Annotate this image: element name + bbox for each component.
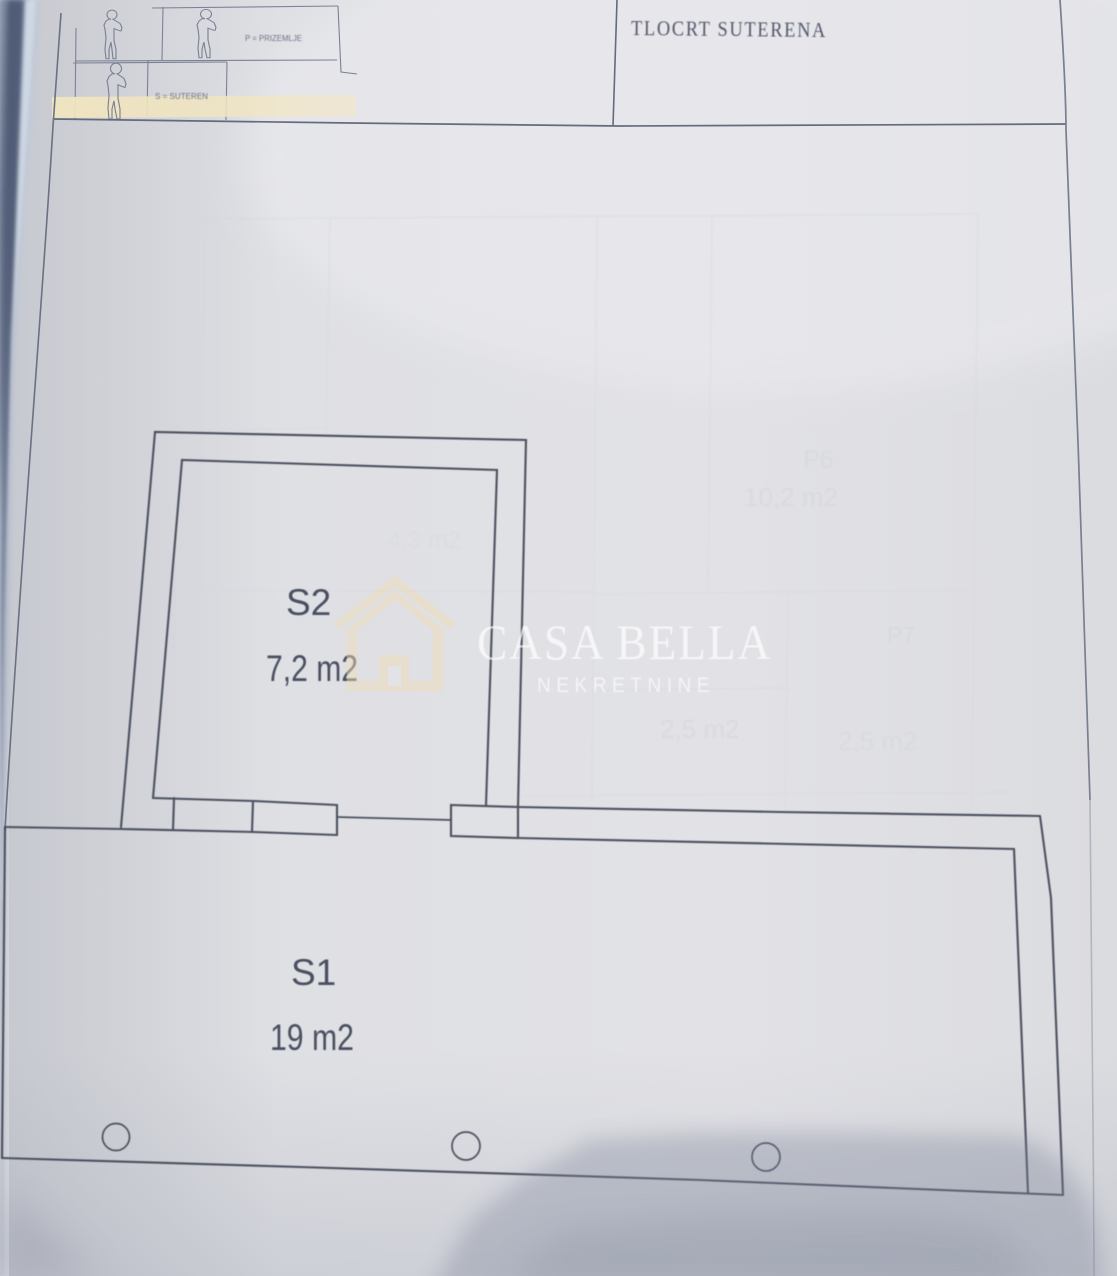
svg-text:S = SUTEREN: S = SUTEREN (155, 92, 208, 101)
svg-text:P = PRIZEMLJE: P = PRIZEMLJE (245, 34, 302, 43)
svg-text:CASA BELLA: CASA BELLA (477, 614, 772, 670)
svg-text:10,2 m2: 10,2 m2 (744, 482, 838, 512)
svg-text:4,3 m2: 4,3 m2 (388, 527, 461, 554)
svg-text:NEKRETNINE: NEKRETNINE (537, 674, 715, 697)
svg-text:P7: P7 (887, 622, 915, 648)
svg-text:S1: S1 (291, 952, 336, 993)
svg-text:7,2 m2: 7,2 m2 (266, 648, 358, 689)
svg-text:S2: S2 (286, 582, 331, 623)
svg-text:2,5 m2: 2,5 m2 (660, 714, 740, 744)
svg-text:TLOCRT SUTERENA: TLOCRT SUTERENA (631, 16, 827, 42)
svg-text:P6: P6 (803, 446, 834, 474)
svg-text:19 m2: 19 m2 (270, 1017, 354, 1058)
svg-text:2,5 m2: 2,5 m2 (838, 726, 918, 756)
